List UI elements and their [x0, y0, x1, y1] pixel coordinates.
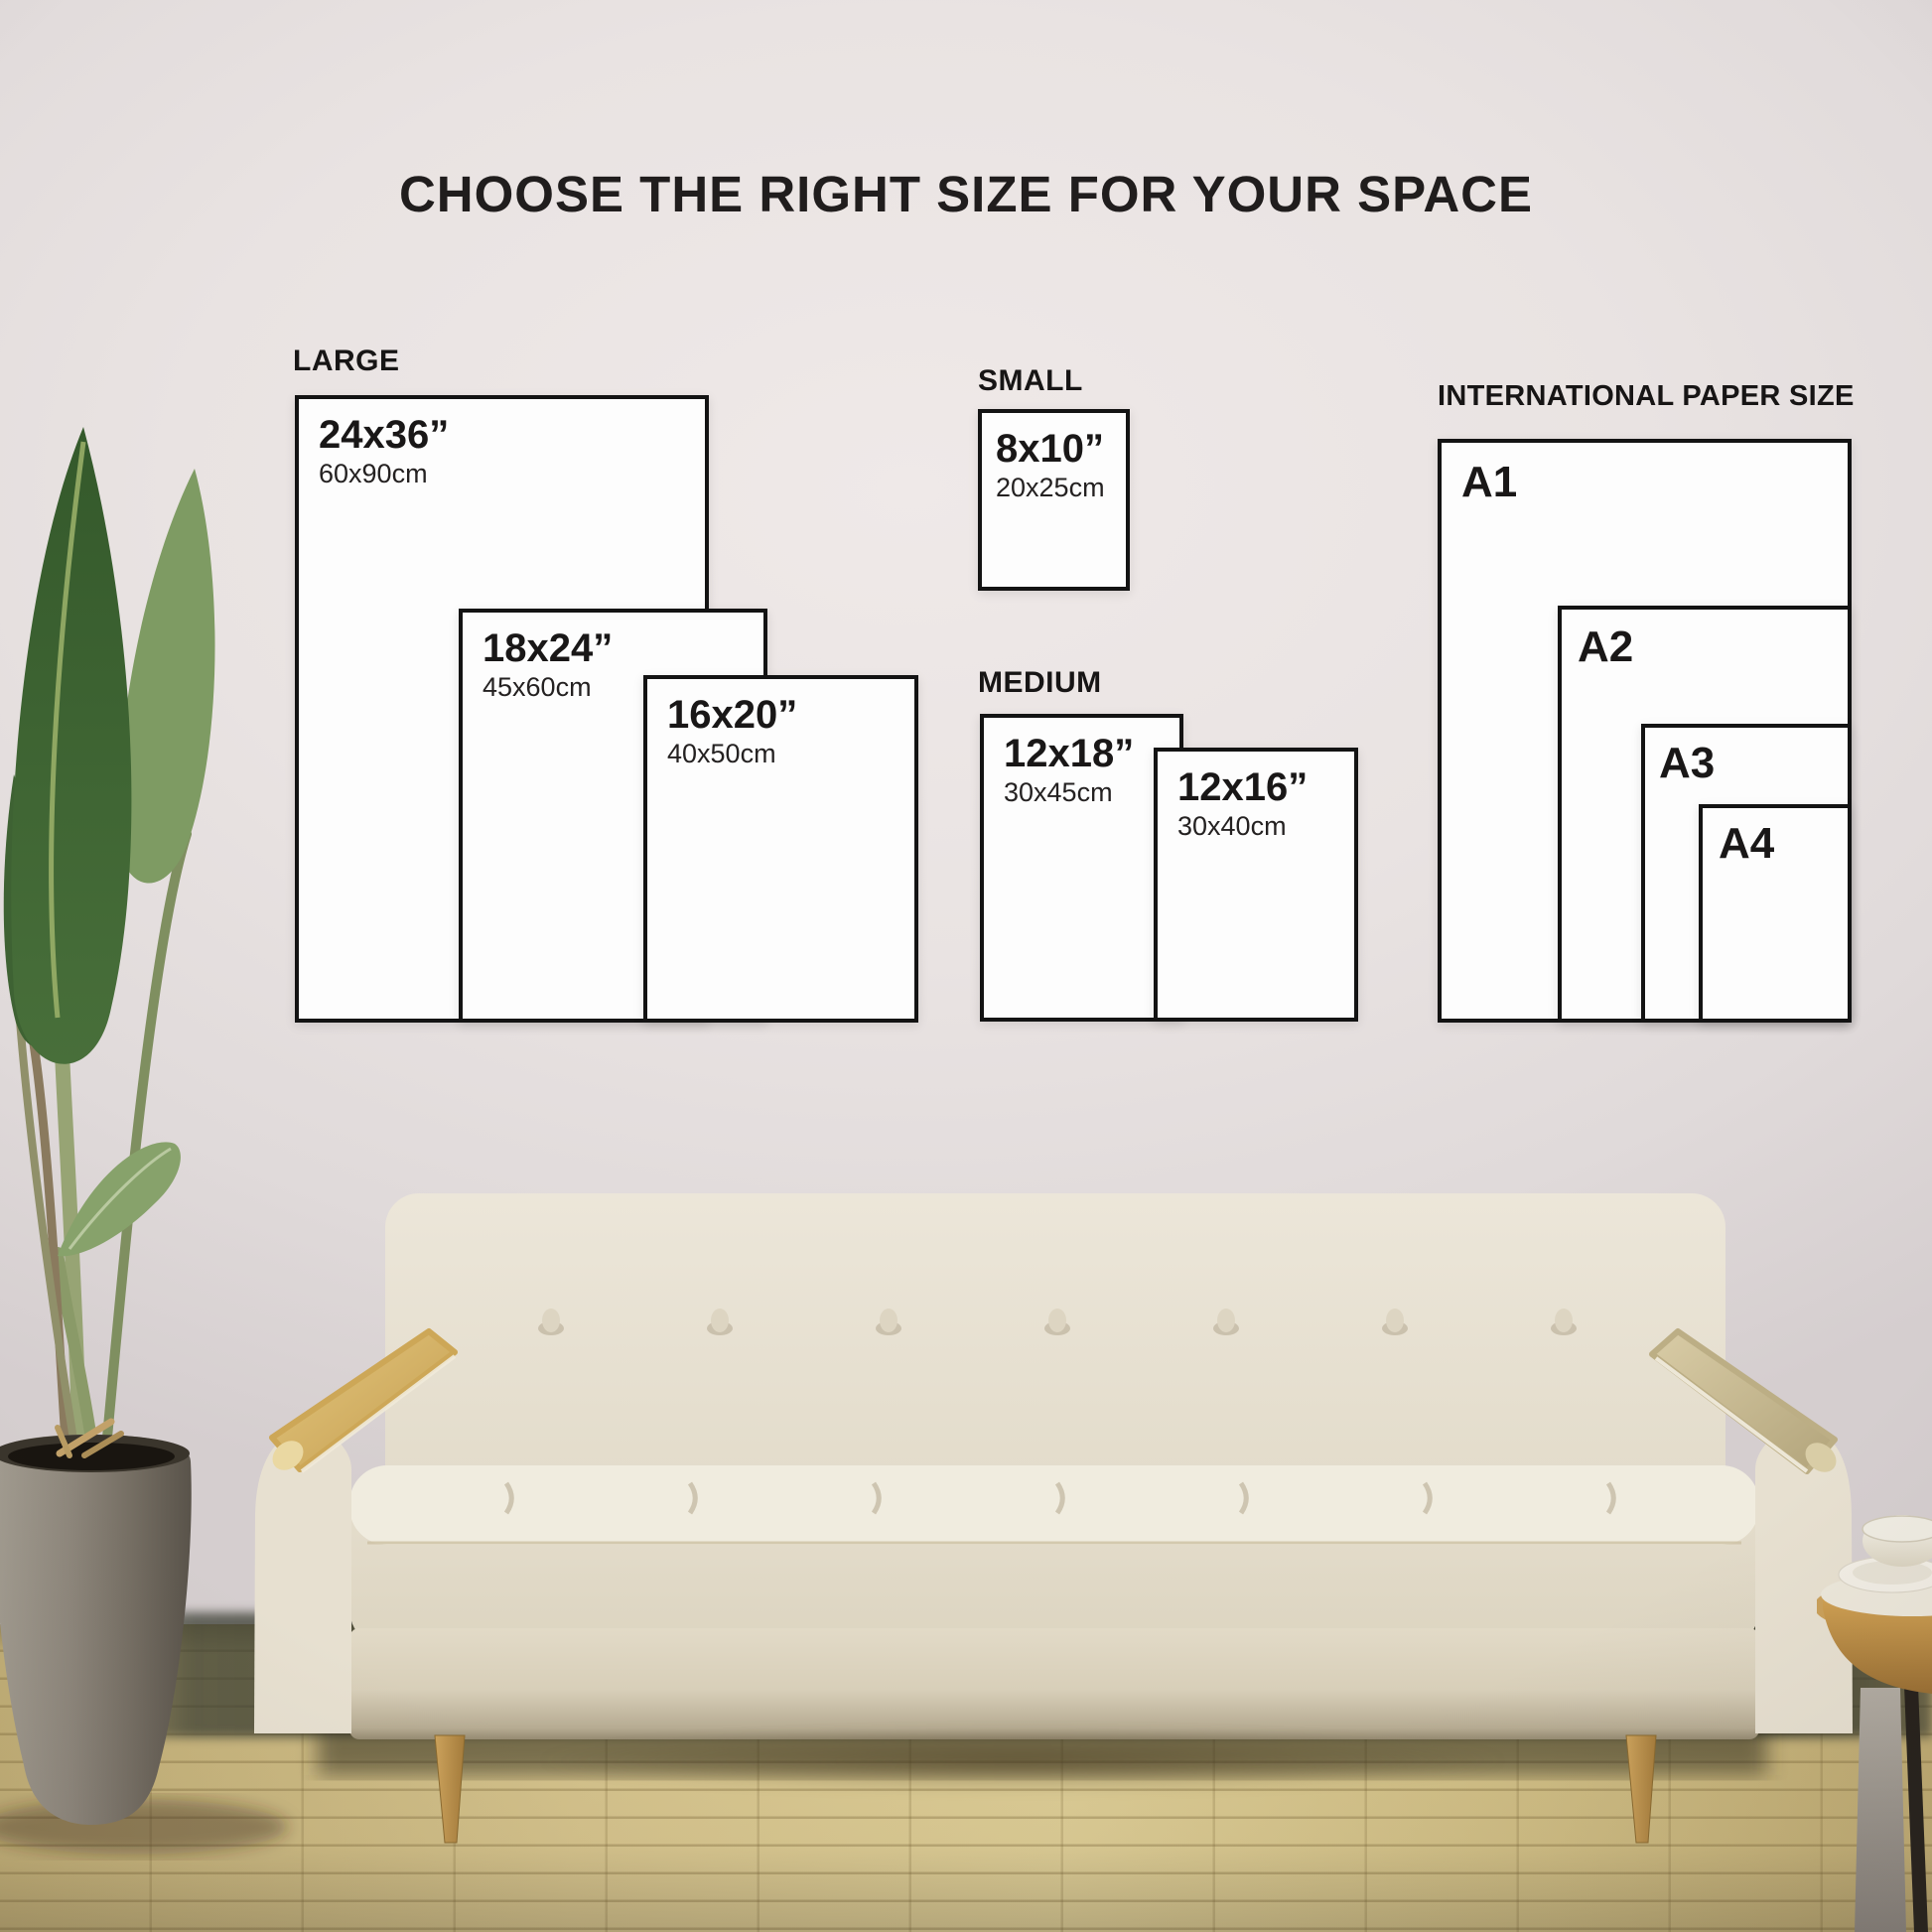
- plant-pot: [0, 1435, 192, 1825]
- size-box-8x10: 8x10” 20x25cm: [978, 409, 1130, 591]
- size-inches: 16x20”: [667, 693, 914, 737]
- size-inches: 8x10”: [996, 427, 1126, 471]
- seat-cushion-top: [349, 1465, 1759, 1545]
- size-cm: 20x25cm: [996, 473, 1126, 503]
- pot-soil: [8, 1443, 175, 1470]
- group-label-international: INTERNATIONAL PAPER SIZE: [1438, 382, 1855, 411]
- bowl-rim: [1863, 1516, 1932, 1542]
- size-box-16x20: 16x20” 40x50cm: [643, 675, 918, 1023]
- sofa-floor-shadow: [328, 1729, 1718, 1819]
- plant-leaf: [117, 469, 215, 884]
- size-inches: 12x16”: [1177, 765, 1354, 809]
- size-inches: 24x36”: [319, 413, 705, 457]
- group-label-large: LARGE: [293, 346, 400, 376]
- paper-size-name: A2: [1578, 625, 1848, 669]
- group-label-medium: MEDIUM: [978, 668, 1102, 698]
- table-leg-concrete: [1855, 1688, 1906, 1932]
- size-cm: 60x90cm: [319, 459, 705, 489]
- side-table: [1817, 1489, 1932, 1932]
- paper-size-name: A1: [1461, 461, 1848, 504]
- room-scene: CHOOSE THE RIGHT SIZE FOR YOUR SPACE LAR…: [0, 0, 1932, 1932]
- table-leg-black: [1904, 1686, 1928, 1932]
- size-cm: 40x50cm: [667, 739, 914, 769]
- size-box-12x16: 12x16” 30x40cm: [1154, 748, 1358, 1022]
- size-box-a4: A4: [1699, 804, 1852, 1023]
- group-label-small: SMALL: [978, 366, 1083, 396]
- sofa-base: [349, 1628, 1759, 1739]
- paper-size-name: A3: [1659, 742, 1848, 785]
- size-cm: 30x40cm: [1177, 811, 1354, 842]
- paper-size-name: A4: [1719, 822, 1848, 866]
- size-inches: 18x24”: [483, 626, 763, 670]
- page-title: CHOOSE THE RIGHT SIZE FOR YOUR SPACE: [0, 165, 1932, 223]
